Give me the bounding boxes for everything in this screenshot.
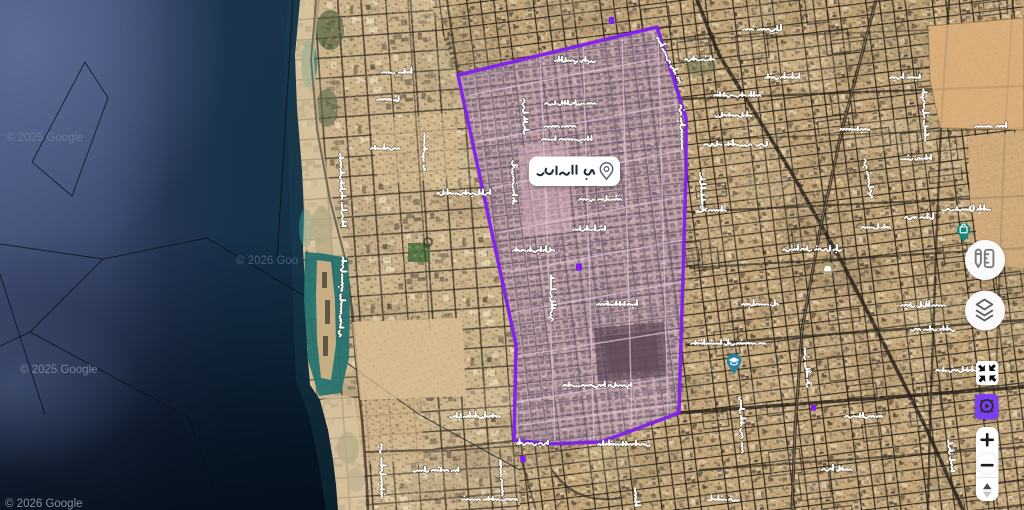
svg-text:© 2026 Google: © 2026 Google (5, 498, 83, 510)
svg-text:© 2025 Google: © 2025 Google (6, 132, 84, 144)
svg-text:© 2025 Google: © 2025 Google (20, 364, 98, 376)
svg-text:© 2026 Goo: © 2026 Goo (236, 255, 298, 267)
